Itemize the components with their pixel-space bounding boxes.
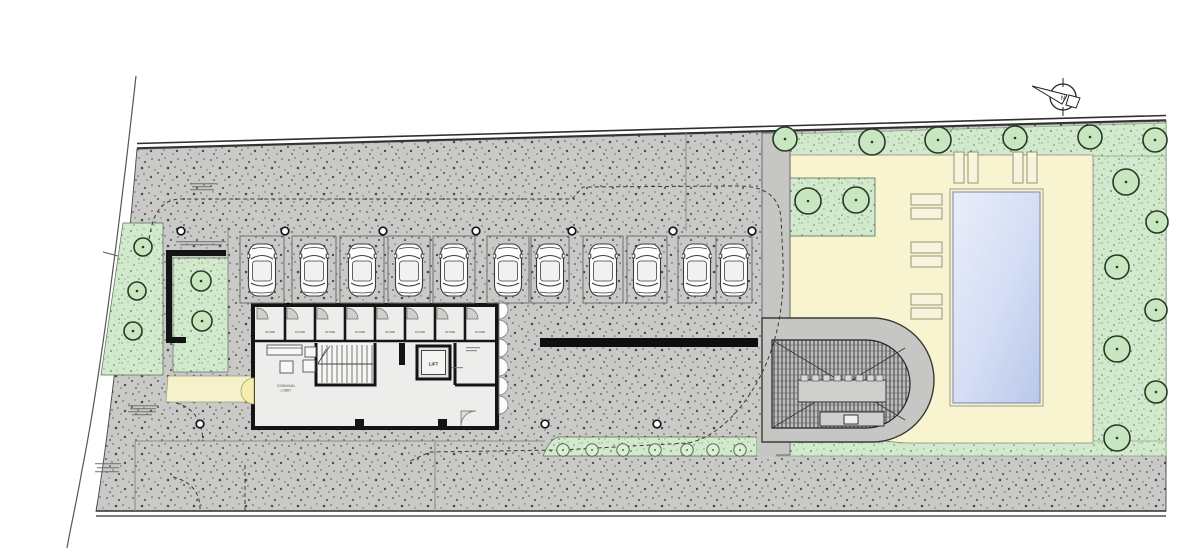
bush-icon bbox=[681, 444, 693, 456]
tree-icon bbox=[191, 271, 211, 291]
tree-icon bbox=[859, 129, 885, 155]
tree-icon bbox=[124, 322, 142, 340]
storage-room-label: STORE bbox=[265, 330, 275, 334]
door-stop bbox=[438, 419, 447, 428]
tree-icon bbox=[795, 188, 821, 214]
bush-icon bbox=[734, 444, 746, 456]
sun-lounger bbox=[911, 208, 942, 219]
sun-lounger bbox=[911, 294, 942, 305]
tree-icon bbox=[773, 127, 797, 151]
survey-tick bbox=[103, 252, 118, 256]
sun-lounger bbox=[911, 242, 942, 253]
storage-room-label: STORE bbox=[445, 330, 455, 334]
tree-icon bbox=[1078, 125, 1102, 149]
bollard-icon bbox=[177, 227, 185, 235]
ramp-platform bbox=[798, 380, 886, 402]
bush-icon bbox=[586, 444, 598, 456]
tree-icon bbox=[843, 187, 869, 213]
storage-room-label: STORE bbox=[415, 330, 425, 334]
car-icon bbox=[632, 244, 662, 296]
north-label: N bbox=[1061, 96, 1065, 102]
tree-icon bbox=[192, 311, 212, 331]
bollard-icon bbox=[281, 227, 289, 235]
wall-stub bbox=[399, 343, 405, 365]
tree-icon bbox=[134, 238, 152, 256]
door-stop bbox=[355, 419, 364, 428]
tree-icon bbox=[1104, 425, 1130, 451]
car-icon bbox=[247, 244, 277, 296]
sun-lounger bbox=[911, 194, 942, 205]
car-icon bbox=[394, 244, 424, 296]
pool-water bbox=[953, 192, 1040, 403]
tree-icon bbox=[1003, 126, 1027, 150]
storage-room-label: STORE bbox=[325, 330, 335, 334]
car-icon bbox=[299, 244, 329, 296]
bush-icon bbox=[707, 444, 719, 456]
storage-room-label: STORE bbox=[385, 330, 395, 334]
bollard-icon bbox=[669, 227, 677, 235]
sun-lounger bbox=[911, 256, 942, 267]
site-plan-drawing: STORESTORESTORESTORESTORESTORESTORESTORE… bbox=[0, 0, 1201, 558]
bollard-icon bbox=[568, 227, 576, 235]
bollard-icon bbox=[541, 420, 549, 428]
svg-text:COMMUNAL: COMMUNAL bbox=[277, 384, 296, 388]
bollard-icon bbox=[472, 227, 480, 235]
tree-icon bbox=[925, 127, 951, 153]
bollard-icon bbox=[196, 420, 204, 428]
car-icon bbox=[719, 244, 749, 296]
tree-icon bbox=[1145, 381, 1167, 403]
screen-wall bbox=[540, 338, 758, 347]
tree-icon bbox=[1104, 336, 1130, 362]
storage-room-label: STORE bbox=[475, 330, 485, 334]
sun-lounger bbox=[954, 152, 964, 183]
bush-icon bbox=[649, 444, 661, 456]
car-icon bbox=[588, 244, 618, 296]
sun-lounger bbox=[1027, 152, 1037, 183]
north-arrow-icon: N bbox=[1032, 78, 1080, 116]
tree-icon bbox=[1146, 211, 1168, 233]
storage-room-label: STORE bbox=[295, 330, 305, 334]
basement-ramp bbox=[762, 318, 934, 442]
lift: LIFT bbox=[417, 346, 450, 379]
apartment-building: STORESTORESTORESTORESTORESTORESTORESTORE… bbox=[241, 305, 497, 428]
swimming-pool bbox=[950, 189, 1043, 406]
svg-text:LOBBY: LOBBY bbox=[281, 389, 293, 393]
tree-icon bbox=[1105, 255, 1129, 279]
bollard-icon bbox=[748, 227, 756, 235]
storage-room-label: STORE bbox=[355, 330, 365, 334]
bush-icon bbox=[617, 444, 629, 456]
sun-lounger bbox=[968, 152, 978, 183]
bush-icon bbox=[557, 444, 569, 456]
sun-lounger bbox=[1013, 152, 1023, 183]
entrance-walkway bbox=[166, 376, 253, 402]
tree-icon bbox=[128, 282, 146, 300]
car-icon bbox=[493, 244, 523, 296]
ramp-lower-box-inner bbox=[844, 415, 858, 424]
car-icon bbox=[682, 244, 712, 296]
site-plan: STORESTORESTORESTORESTORESTORESTORESTORE… bbox=[0, 0, 1201, 558]
car-icon bbox=[535, 244, 565, 296]
sun-lounger bbox=[911, 308, 942, 319]
bollard-icon bbox=[653, 420, 661, 428]
tree-icon bbox=[1143, 128, 1167, 152]
tree-icon bbox=[1145, 299, 1167, 321]
tree-icon bbox=[1113, 169, 1139, 195]
lift-label: LIFT bbox=[429, 362, 439, 367]
car-icon bbox=[439, 244, 469, 296]
bollard-icon bbox=[379, 227, 387, 235]
car-icon bbox=[347, 244, 377, 296]
staircase bbox=[316, 343, 375, 385]
